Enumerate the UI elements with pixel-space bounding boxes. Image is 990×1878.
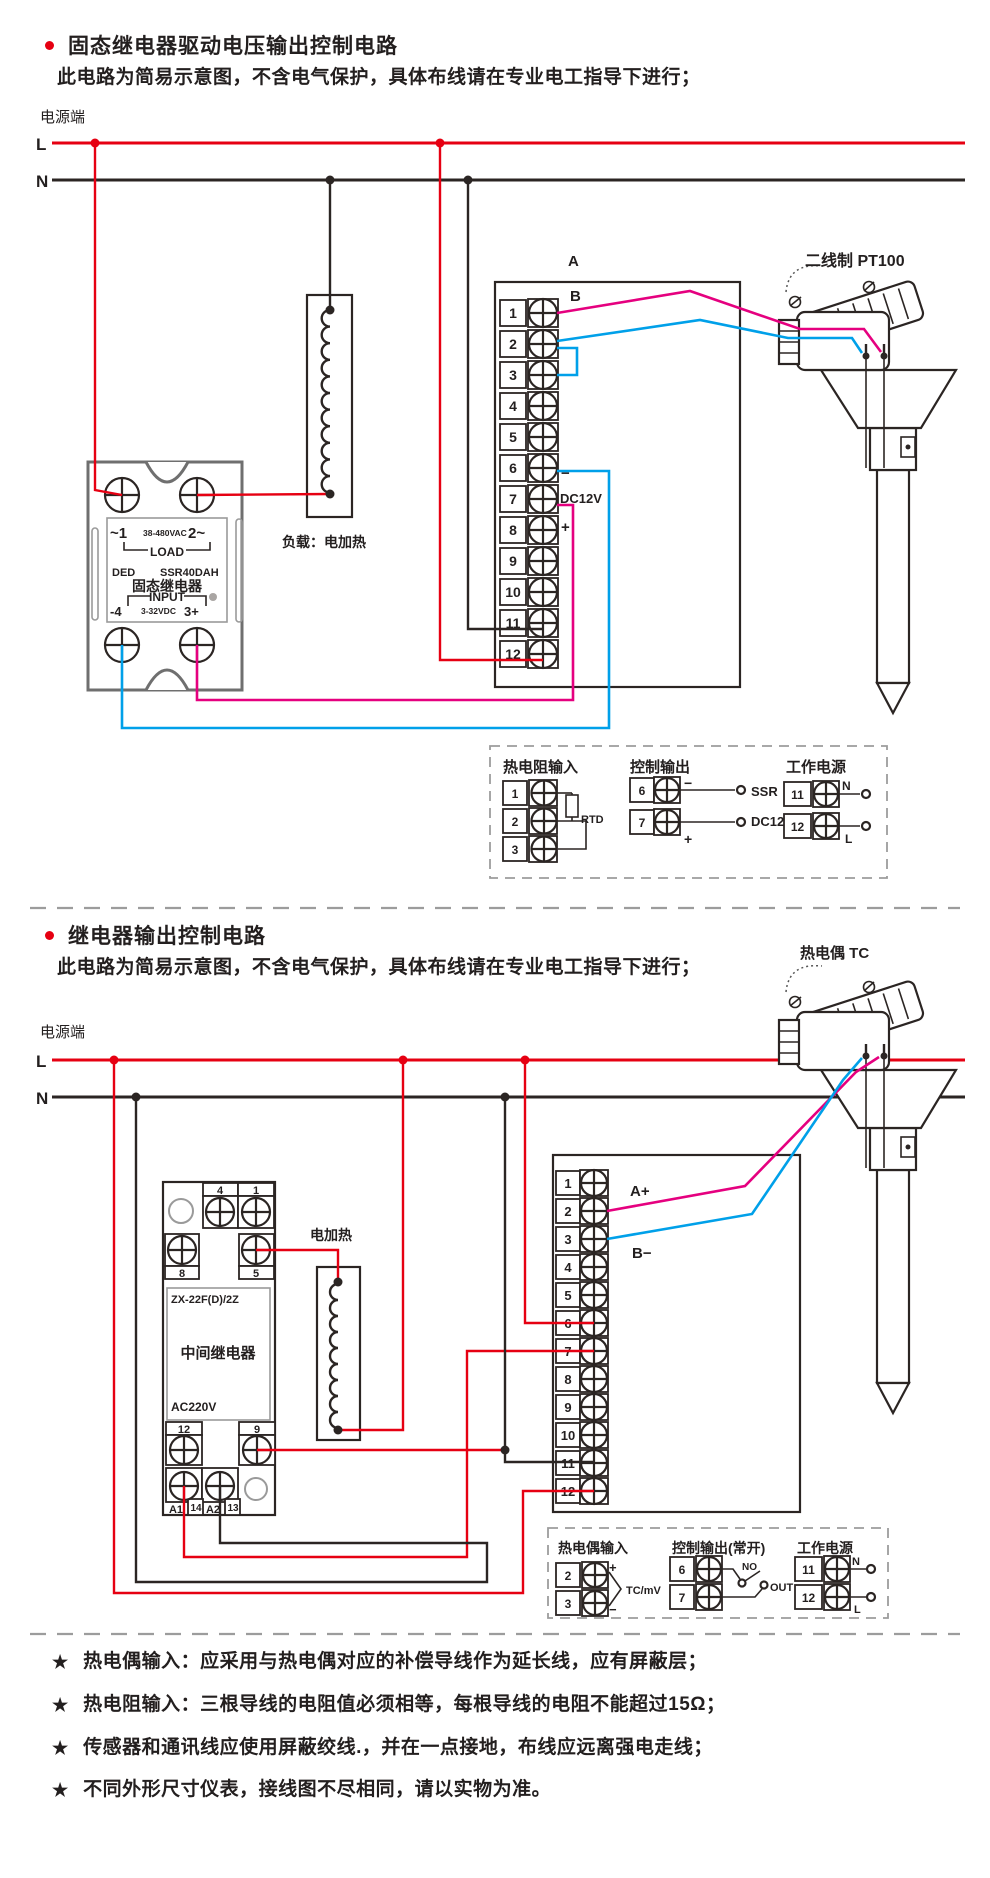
ssr-ac1: ~1 xyxy=(110,525,127,542)
rtd-resistor xyxy=(566,795,578,817)
terminal-number: 2 xyxy=(564,1204,571,1219)
screw-terminal xyxy=(242,1198,270,1226)
terminal-row: 7 xyxy=(630,809,680,835)
terminal-number: 3 xyxy=(564,1232,571,1247)
screw-terminal xyxy=(529,299,557,327)
screw-terminal xyxy=(529,423,557,451)
pwr-l-label: L xyxy=(845,832,852,846)
legend-tc-title: 热电偶输入 xyxy=(558,1540,628,1556)
sensor-label: 热电偶 TC xyxy=(800,944,869,962)
terminal-number: 4 xyxy=(509,398,517,414)
tc-label: TC/mV xyxy=(626,1585,662,1597)
screw-terminal xyxy=(581,1366,607,1392)
terminal-row: 4 xyxy=(556,1254,608,1280)
terminal-number: 3 xyxy=(565,1597,572,1611)
screw-terminal xyxy=(529,454,557,482)
wire-a-label: A xyxy=(568,253,579,270)
terminal-row: 3 xyxy=(556,1590,608,1616)
terminal-number: 11 xyxy=(561,1456,575,1471)
diagram1: 电源端 L N 负载：电加热 ~1 38-480VAC 2~ xyxy=(30,109,965,908)
screw-terminal xyxy=(532,781,557,806)
power-label: 电源端 xyxy=(40,109,85,126)
terminal-number: 11 xyxy=(791,788,804,802)
screw-terminal xyxy=(206,1198,234,1226)
terminal-row: 1 xyxy=(556,1170,608,1196)
heater-box xyxy=(317,1267,360,1440)
line-l-label: L xyxy=(36,1052,46,1071)
terminal-row: 10 xyxy=(556,1422,608,1448)
screw-terminal xyxy=(825,1585,849,1609)
relay-model: ZX-22F(D)/2Z xyxy=(171,1294,239,1306)
relay-terminal-label: 5 xyxy=(253,1268,259,1280)
relay-coil-label: A1 xyxy=(169,1504,183,1516)
screw-terminal xyxy=(529,392,557,420)
screw-terminal xyxy=(532,809,557,834)
terminal-row: 11 xyxy=(795,1556,850,1582)
terminal-row: 3 xyxy=(556,1226,608,1252)
screw-terminal xyxy=(529,547,557,575)
ssr-dc-range: 3-32VDC xyxy=(141,606,176,616)
junction-dot xyxy=(334,1278,343,1287)
screw-terminal xyxy=(529,330,557,358)
terminal-number: 5 xyxy=(509,429,517,445)
wire-ssr-to-load xyxy=(197,494,330,495)
load-label: 负载：电加热 xyxy=(282,534,366,550)
terminal-row: 8 xyxy=(556,1366,608,1392)
junction-dot xyxy=(501,1093,510,1102)
screw-terminal xyxy=(529,485,557,513)
screw-terminal xyxy=(697,1585,721,1609)
ssr-ac-range: 38-480VAC xyxy=(143,528,187,538)
junction-dot xyxy=(326,490,335,499)
terminal-row: 3 xyxy=(503,836,557,862)
screw-terminal xyxy=(655,778,679,802)
terminal-number: 2 xyxy=(565,1569,572,1583)
terminal-number: 10 xyxy=(505,584,521,600)
relay-hole xyxy=(169,1199,193,1223)
diagram2: 电源端 L N 热电偶 TC 4 1 8 xyxy=(30,944,965,1634)
legend-out-title: 控制输出 xyxy=(630,758,690,776)
pwr-n-label: N xyxy=(842,779,851,793)
junction-dot xyxy=(91,139,100,148)
terminal-number: 7 xyxy=(679,1591,686,1605)
ssr-led xyxy=(209,593,217,601)
sensor-label: 二线制 PT100 xyxy=(805,251,905,270)
line-l-label: L xyxy=(36,135,46,154)
terminal-number: 1 xyxy=(509,305,517,321)
terminal-number: 9 xyxy=(509,553,517,569)
terminal-row: 5 xyxy=(556,1282,608,1308)
terminal-number: 1 xyxy=(512,787,519,801)
terminal-row: 5 xyxy=(500,423,558,451)
terminal-number: 7 xyxy=(639,816,646,830)
screw-terminal xyxy=(825,1557,849,1581)
terminal-number: 3 xyxy=(512,843,519,857)
out-out-label: OUT xyxy=(770,1582,794,1594)
terminal-number: 4 xyxy=(564,1260,572,1275)
terminal-number: 6 xyxy=(639,784,646,798)
terminal-row: 7 xyxy=(670,1584,722,1610)
terminal-row: 8 xyxy=(500,516,558,544)
legend-out-title: 控制输出(常开) xyxy=(672,1540,765,1556)
terminal-row: 11 xyxy=(500,609,558,637)
legend-pwr-title: 工作电源 xyxy=(786,758,846,776)
relay-hole xyxy=(245,1478,267,1500)
junction-dot xyxy=(501,1446,510,1455)
terminal-row: 2 xyxy=(556,1562,608,1588)
legend-rtd-title: 热电阻输入 xyxy=(503,758,578,776)
ssr-dc-left: -4 xyxy=(110,604,122,619)
screw-terminal xyxy=(529,361,557,389)
ssr-module: ~1 38-480VAC 2~ LOAD DED SSR40DAH 固态继电器 … xyxy=(88,462,242,690)
screw-terminal xyxy=(581,1198,607,1224)
wire-b-label: B xyxy=(570,288,581,305)
terminal-row: 9 xyxy=(556,1394,608,1420)
terminal-row: 7 xyxy=(500,485,558,513)
ssr-load-label: LOAD xyxy=(150,545,184,559)
terminal-row: 2 xyxy=(500,330,558,358)
out-no-label: NO xyxy=(742,1562,757,1573)
terminal-number: 12 xyxy=(802,1591,816,1605)
power-label: 电源端 xyxy=(40,1024,85,1041)
junction-dot xyxy=(436,139,445,148)
line-n-label: N xyxy=(36,172,48,191)
out-ssr-label: SSR xyxy=(751,784,778,799)
terminal-row: 12 xyxy=(784,813,839,839)
screw-terminal xyxy=(529,578,557,606)
terminal-row: 3 xyxy=(500,361,558,389)
terminal-number: 1 xyxy=(564,1176,571,1191)
wiring-diagram: 电源端 L N 负载：电加热 ~1 38-480VAC 2~ xyxy=(0,0,990,1878)
terminal-number: 2 xyxy=(512,815,519,829)
terminal-row: 1 xyxy=(503,780,557,806)
ssr-dc-right: 3+ xyxy=(184,604,199,619)
terminal-row: 11 xyxy=(784,781,839,807)
terminal-number: 2 xyxy=(509,336,517,352)
terminal-number: 8 xyxy=(564,1372,571,1387)
screw-terminal xyxy=(529,640,557,668)
terminal-number: 6 xyxy=(679,1563,686,1577)
relay-voltage: AC220V xyxy=(171,1400,216,1414)
terminal-number: 7 xyxy=(509,491,517,507)
wire-b-label: B− xyxy=(632,1245,652,1262)
out-minus: − xyxy=(684,775,692,791)
rtd-label: RTD xyxy=(581,814,604,826)
junction-dot xyxy=(110,1056,119,1065)
relay-coil-label: A2 xyxy=(206,1504,220,1516)
relay-name: 中间继电器 xyxy=(180,1344,256,1362)
terminal-number: 3 xyxy=(509,367,517,383)
terminal-number: 12 xyxy=(791,820,805,834)
ssr-input-label: INPUT xyxy=(149,590,186,604)
terminal-number: 9 xyxy=(564,1400,571,1415)
screw-terminal xyxy=(581,1394,607,1420)
terminal-row: 6 xyxy=(630,777,680,803)
terminal-number: 11 xyxy=(802,1563,815,1577)
relay-terminal-label: 8 xyxy=(179,1268,185,1280)
terminal-row: 6 xyxy=(500,454,558,482)
terminal-row: 9 xyxy=(500,547,558,575)
manual-page: 固态继电器驱动电压输出控制电路 此电路为简易示意图，不含电气保护，具体布线请在专… xyxy=(0,0,990,1878)
junction-dot xyxy=(334,1426,343,1435)
line-n-label: N xyxy=(36,1089,48,1108)
legend-pwr-title: 工作电源 xyxy=(797,1540,853,1556)
wire-a-label: A+ xyxy=(630,1183,650,1200)
screw-terminal xyxy=(581,1226,607,1252)
heater-label: 电加热 xyxy=(310,1227,352,1243)
junction-dot xyxy=(399,1056,408,1065)
junction-dot xyxy=(132,1093,141,1102)
junction-dot xyxy=(326,306,335,315)
screw-terminal xyxy=(168,1236,196,1264)
legend1: 热电阻输入 123 RTD 控制输出 67 − SSR DC12V + 工作电源 xyxy=(490,746,887,878)
terminal-row: 2 xyxy=(503,808,557,834)
terminal-number: 10 xyxy=(561,1428,575,1443)
screw-terminal xyxy=(581,1170,607,1196)
terminal-row: 10 xyxy=(500,578,558,606)
junction-dot xyxy=(521,1056,530,1065)
screw-terminal xyxy=(655,810,679,834)
screw-terminal xyxy=(529,609,557,637)
wire-l-to-ssr xyxy=(95,143,122,495)
dc-plus: + xyxy=(561,519,570,536)
terminal-number: 5 xyxy=(564,1288,571,1303)
relay-module: 4 1 8 5 ZX-22F(D)/2Z 中间继电器 AC220V 12 9 xyxy=(163,1182,275,1516)
ssr-ac2: 2~ xyxy=(188,525,205,542)
terminal-row: 12 xyxy=(500,640,558,668)
relay-coil-label: 13 xyxy=(227,1503,239,1514)
screw-terminal xyxy=(529,516,557,544)
terminal-number: 8 xyxy=(509,522,517,538)
pwr-n-label: N xyxy=(852,1556,860,1568)
dc-minus: − xyxy=(561,465,570,482)
terminal-row: 1 xyxy=(500,299,558,327)
screw-terminal xyxy=(532,837,557,862)
screw-terminal xyxy=(581,1422,607,1448)
load-box xyxy=(307,295,352,517)
junction-dot xyxy=(326,176,335,185)
terminal-row: 6 xyxy=(670,1556,722,1582)
terminal-number: 6 xyxy=(509,460,517,476)
screw-terminal xyxy=(581,1282,607,1308)
relay-coil-label: 14 xyxy=(190,1503,202,1514)
junction-dot xyxy=(464,176,473,185)
terminal-row: 2 xyxy=(556,1198,608,1224)
terminal-row: 4 xyxy=(500,392,558,420)
screw-terminal xyxy=(583,1591,607,1615)
terminal-row: 12 xyxy=(795,1584,850,1610)
screw-terminal xyxy=(170,1436,198,1464)
screw-terminal xyxy=(697,1557,721,1581)
legend2: 热电偶输入 23 + − TC/mV 控制输出(常开) 67 NO OUT 工作… xyxy=(548,1528,888,1618)
screw-terminal xyxy=(581,1254,607,1280)
out-plus: + xyxy=(684,831,692,847)
pwr-l-label: L xyxy=(854,1604,861,1616)
screw-terminal xyxy=(583,1563,607,1587)
